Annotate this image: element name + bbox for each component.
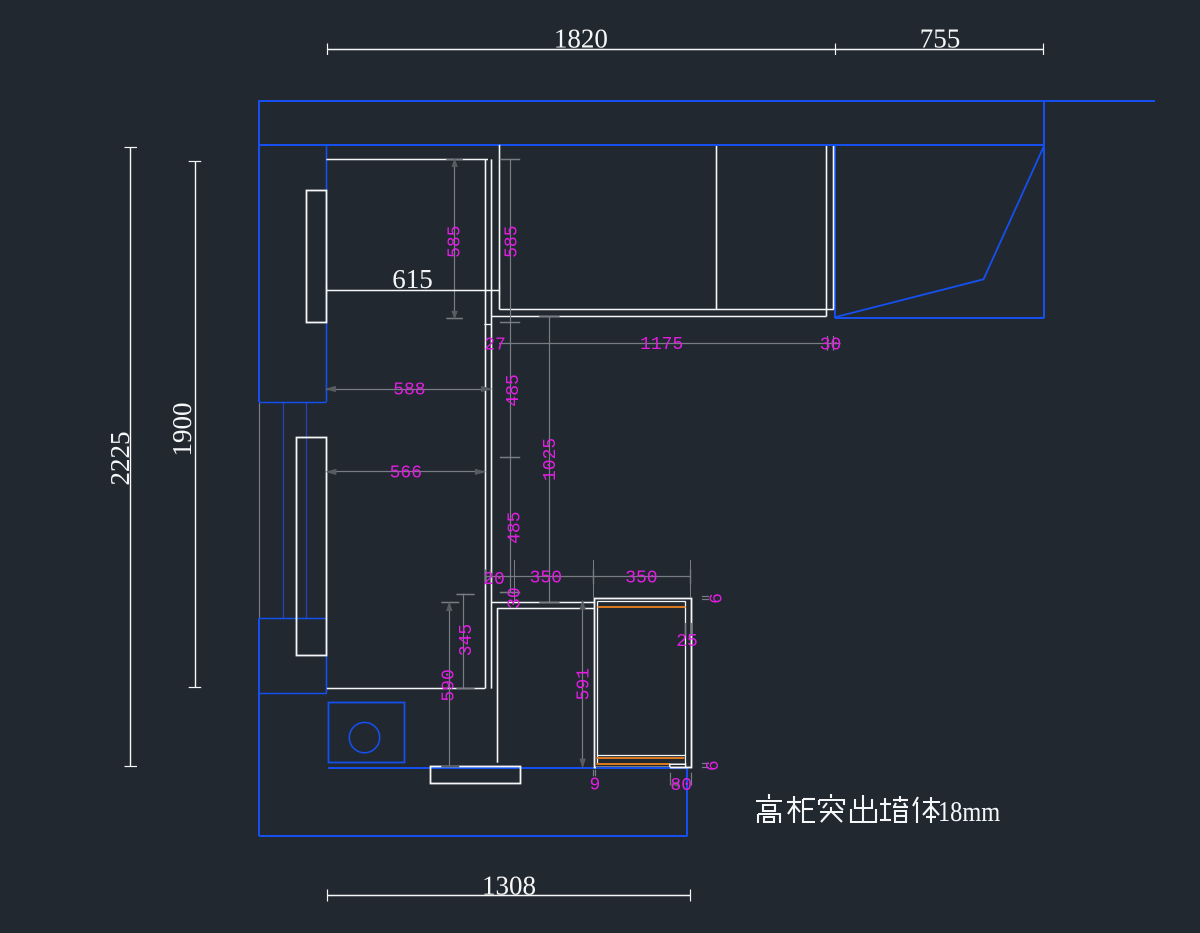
svg-text:6: 6 [708, 593, 728, 604]
svg-text:485: 485 [505, 511, 525, 543]
svg-text:1820: 1820 [554, 24, 608, 54]
svg-text:590: 590 [440, 669, 460, 701]
svg-text:1308: 1308 [482, 871, 536, 901]
svg-text:485: 485 [504, 374, 524, 406]
svg-text:18mm: 18mm [938, 795, 1000, 827]
svg-text:755: 755 [920, 24, 961, 54]
svg-text:345: 345 [457, 624, 477, 656]
svg-text:350: 350 [530, 569, 562, 589]
svg-text:350: 350 [625, 569, 657, 589]
svg-text:591: 591 [575, 668, 595, 700]
svg-text:588: 588 [393, 381, 425, 401]
svg-text:585: 585 [446, 225, 466, 257]
svg-text:566: 566 [390, 463, 422, 483]
svg-text:80: 80 [670, 776, 692, 796]
svg-text:2225: 2225 [105, 432, 135, 486]
svg-text:6: 6 [704, 760, 724, 771]
svg-text:25: 25 [676, 632, 698, 652]
svg-text:1025: 1025 [541, 438, 561, 481]
svg-text:615: 615 [392, 264, 433, 294]
svg-text:585: 585 [503, 225, 523, 257]
svg-text:1175: 1175 [640, 335, 683, 355]
svg-text:30: 30 [820, 336, 842, 356]
svg-text:9: 9 [589, 776, 600, 796]
svg-text:1900: 1900 [167, 403, 197, 457]
svg-text:20: 20 [483, 570, 505, 590]
svg-text:27: 27 [484, 335, 506, 355]
svg-text:30: 30 [505, 587, 525, 609]
